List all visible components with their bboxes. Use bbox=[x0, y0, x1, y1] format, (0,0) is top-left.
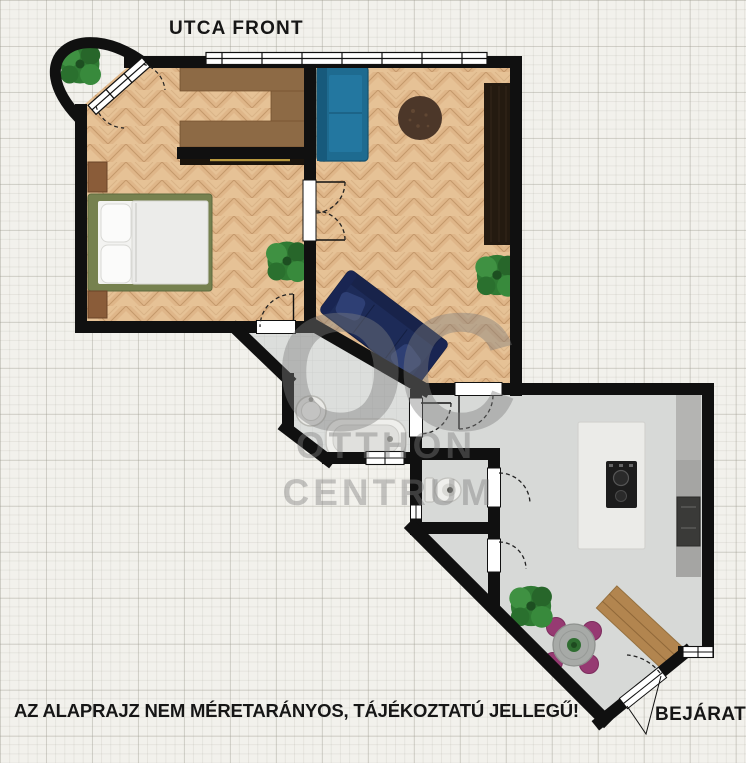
plant bbox=[509, 586, 552, 628]
round-rug bbox=[398, 96, 442, 140]
bed-duvet bbox=[132, 201, 208, 284]
closet-rail-accent bbox=[210, 159, 290, 161]
nightstand bbox=[88, 291, 107, 318]
bed-pillow bbox=[101, 245, 131, 283]
label-disclaimer: AZ ALAPRAJZ NEM MÉRETARÁNYOS, TÁJÉKOZTAT… bbox=[14, 700, 579, 722]
watermark-line2: CENTRUM bbox=[283, 472, 496, 513]
floor-plan-drawing: OC OTTHON CENTRUM bbox=[0, 0, 746, 763]
kitchen-counter bbox=[676, 394, 701, 577]
kitchen-island bbox=[578, 422, 645, 549]
watermark: OC OTTHON CENTRUM bbox=[275, 278, 514, 513]
double-door-bedroom-living bbox=[303, 180, 316, 241]
cooktop bbox=[606, 461, 637, 508]
plant bbox=[266, 242, 308, 283]
watermark-line1: OTTHON bbox=[296, 425, 476, 466]
bed bbox=[88, 194, 212, 291]
entrance-side-window bbox=[683, 647, 713, 658]
label-street-front: UTCA FRONT bbox=[169, 18, 304, 40]
oven bbox=[677, 497, 700, 546]
teal-sofa bbox=[317, 66, 368, 161]
tall-cabinet bbox=[484, 83, 511, 245]
door-storage bbox=[488, 539, 501, 572]
floor-plan-page: OC OTTHON CENTRUM UTCA FRONT AZ ALAPRAJZ… bbox=[0, 0, 746, 763]
nightstand bbox=[88, 162, 107, 192]
label-entrance: BEJÁRAT bbox=[655, 704, 746, 726]
street-window bbox=[206, 53, 487, 65]
bed-pillow bbox=[101, 204, 131, 242]
